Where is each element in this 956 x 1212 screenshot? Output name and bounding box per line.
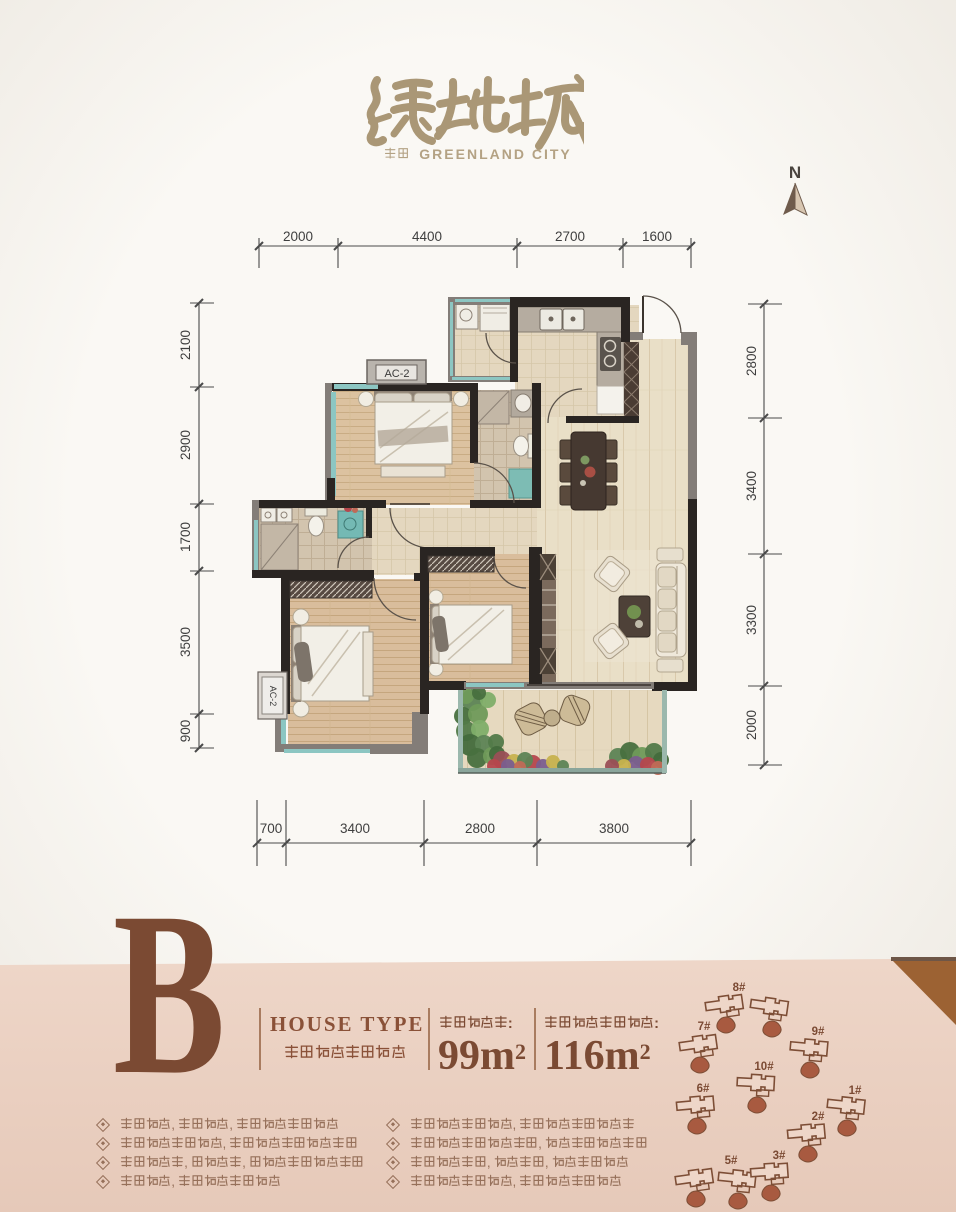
svg-text:1700: 1700 xyxy=(178,522,193,552)
svg-text:3#: 3# xyxy=(773,1150,786,1162)
svg-text:2800: 2800 xyxy=(465,821,495,836)
svg-text:3500: 3500 xyxy=(178,627,193,657)
svg-text:1600: 1600 xyxy=(642,229,672,244)
svg-text:2900: 2900 xyxy=(178,430,193,460)
svg-text:2800: 2800 xyxy=(744,346,759,376)
svg-text:5#: 5# xyxy=(725,1155,738,1167)
svg-text:2100: 2100 xyxy=(178,330,193,360)
svg-text:3300: 3300 xyxy=(744,605,759,635)
svg-text:2700: 2700 xyxy=(555,229,585,244)
svg-text:2#: 2# xyxy=(812,1111,825,1123)
svg-text:8#: 8# xyxy=(733,982,746,994)
svg-text:2000: 2000 xyxy=(744,710,759,740)
svg-text:6#: 6# xyxy=(697,1083,710,1095)
svg-text:3800: 3800 xyxy=(599,821,629,836)
svg-text:7#: 7# xyxy=(698,1021,711,1033)
svg-text:3400: 3400 xyxy=(340,821,370,836)
svg-text:9#: 9# xyxy=(812,1026,825,1038)
svg-text:AC-2: AC-2 xyxy=(268,686,278,707)
svg-text:AC-2: AC-2 xyxy=(384,368,409,380)
svg-text:3400: 3400 xyxy=(744,471,759,501)
svg-text:10#: 10# xyxy=(754,1061,774,1073)
svg-text:N: N xyxy=(789,163,801,182)
svg-text:900: 900 xyxy=(178,720,193,743)
svg-text:2000: 2000 xyxy=(283,229,313,244)
svg-text:700: 700 xyxy=(260,821,283,836)
svg-text:1#: 1# xyxy=(849,1085,862,1097)
svg-text:4400: 4400 xyxy=(412,229,442,244)
